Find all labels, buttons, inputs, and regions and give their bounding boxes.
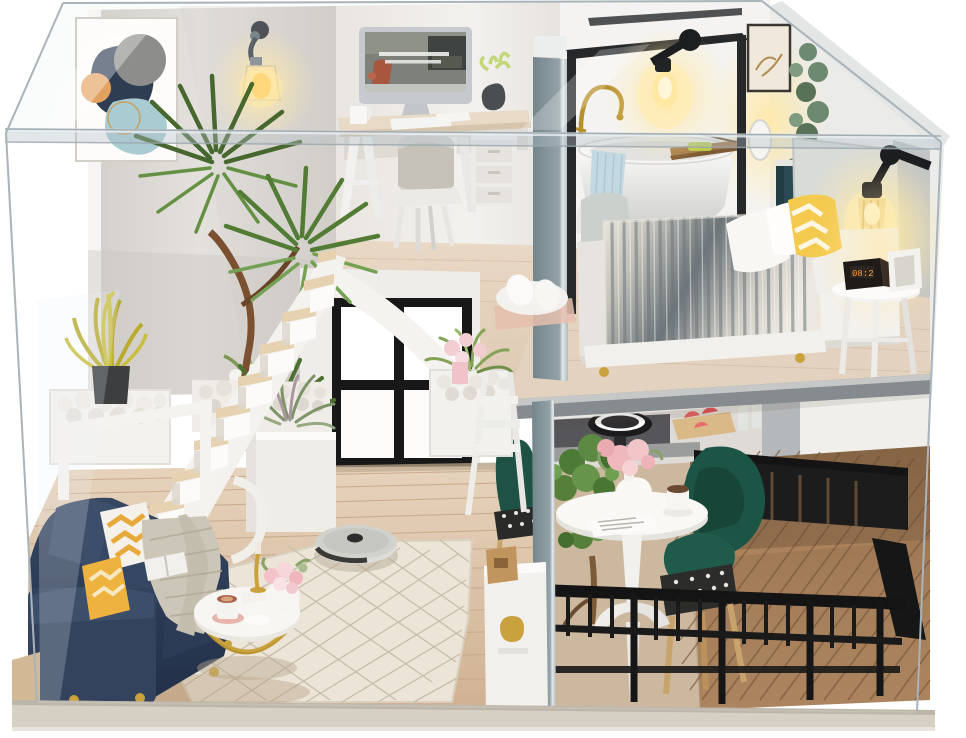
svg-text:08:2: 08:2 [852,269,874,279]
